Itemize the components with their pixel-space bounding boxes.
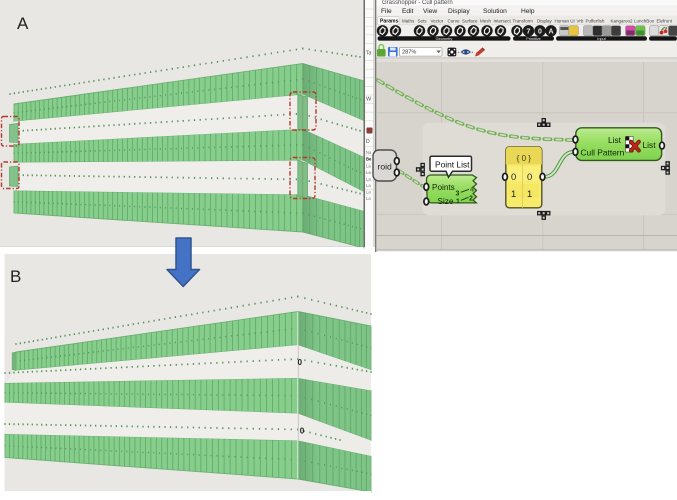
svg-text:B: B <box>10 267 21 286</box>
svg-text:Human UI: Human UI <box>555 19 575 24</box>
svg-text:Primitive: Primitive <box>526 37 541 41</box>
svg-text:4: 4 <box>470 186 474 193</box>
svg-text:Intersect: Intersect <box>494 19 512 24</box>
svg-text:W: W <box>366 97 372 103</box>
svg-text:Geometry: Geometry <box>436 37 453 41</box>
svg-text:Cull Pattern: Cull Pattern <box>581 147 625 157</box>
svg-text:0: 0 <box>298 358 303 367</box>
svg-text:List: List <box>608 135 622 145</box>
svg-text:Vrb: Vrb <box>577 19 584 24</box>
svg-text:La: La <box>366 183 371 188</box>
svg-text:Point List: Point List <box>435 159 470 169</box>
svg-text:Ta: Ta <box>366 51 372 57</box>
svg-text:View: View <box>423 8 437 15</box>
svg-text:0: 0 <box>300 427 305 436</box>
svg-text:Points: Points <box>432 183 455 192</box>
svg-text:Solution: Solution <box>483 8 507 15</box>
svg-text:7: 7 <box>527 28 531 35</box>
svg-text:Transform: Transform <box>513 19 534 24</box>
svg-text:La: La <box>366 196 371 201</box>
svg-text:La: La <box>366 190 371 195</box>
svg-text:D: D <box>366 139 370 145</box>
svg-text:La: La <box>366 170 371 175</box>
svg-text:2: 2 <box>469 196 473 203</box>
svg-text:0: 0 <box>527 171 532 182</box>
svg-text:Display: Display <box>537 19 553 24</box>
svg-text:0: 0 <box>511 171 516 182</box>
svg-text:List: List <box>643 140 657 150</box>
svg-text:Pufferfish: Pufferfish <box>586 19 605 24</box>
svg-text:Grasshopper - Cull pattern: Grasshopper - Cull pattern <box>382 0 453 6</box>
svg-text:LunchBox: LunchBox <box>634 19 655 24</box>
svg-text:Size: Size <box>438 197 454 206</box>
svg-text:1: 1 <box>527 188 532 199</box>
svg-text:roid: roid <box>378 162 393 172</box>
svg-text:Kangaroo2: Kangaroo2 <box>611 19 634 24</box>
svg-text:Vector: Vector <box>431 19 444 24</box>
svg-text:Be: Be <box>366 157 372 162</box>
svg-text:Maths: Maths <box>402 19 415 24</box>
svg-text:Edit: Edit <box>402 8 414 15</box>
svg-text:A: A <box>17 14 29 33</box>
svg-text:Display: Display <box>448 8 470 15</box>
svg-text:Curve: Curve <box>448 19 461 24</box>
svg-text:La: La <box>366 164 371 169</box>
svg-text:Surface: Surface <box>462 19 478 24</box>
svg-text:Help: Help <box>521 8 535 15</box>
svg-text:Params: Params <box>380 19 399 25</box>
svg-text:3: 3 <box>456 190 460 197</box>
svg-text:Mesh: Mesh <box>480 19 492 24</box>
svg-text:1: 1 <box>511 188 516 199</box>
svg-text:A: A <box>548 28 553 35</box>
svg-text:Na: Na <box>366 150 372 155</box>
svg-text:1: 1 <box>456 199 460 206</box>
svg-text:0: 0 <box>538 28 542 35</box>
svg-text:Sets: Sets <box>418 19 428 24</box>
svg-text:File: File <box>381 8 392 15</box>
svg-text:La: La <box>366 177 371 182</box>
svg-text:{ 0 }: { 0 } <box>517 154 532 163</box>
svg-text:Elefront: Elefront <box>657 19 673 24</box>
svg-text:287%: 287% <box>402 50 416 56</box>
svg-text:Input: Input <box>597 37 606 41</box>
